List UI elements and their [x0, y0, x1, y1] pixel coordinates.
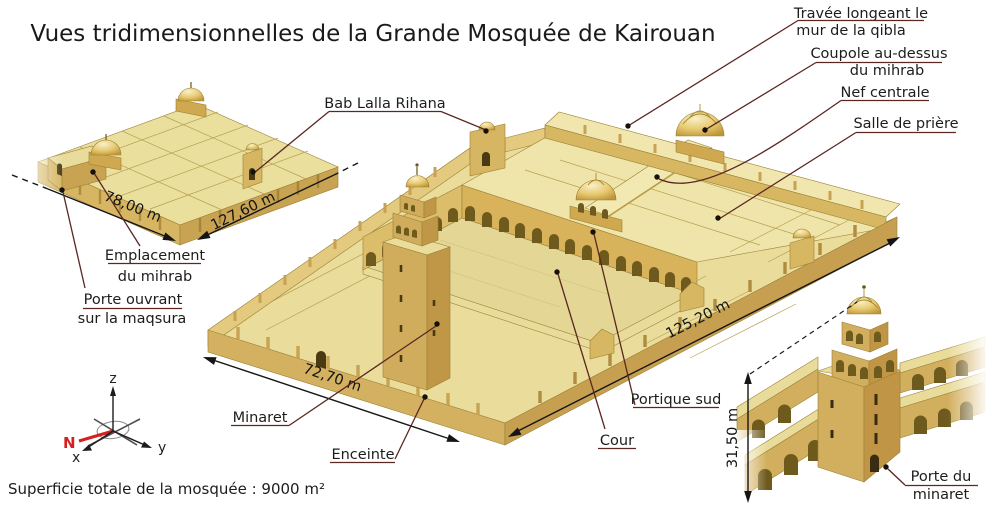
det-fade-right [948, 330, 989, 480]
label-porte-minaret-line2: minaret [913, 487, 970, 503]
leader-maqsura [63, 192, 85, 288]
axis-y-head [141, 442, 152, 449]
dot-enceinte [422, 394, 427, 399]
axis-y-label: y [158, 440, 166, 456]
label-cour: Cour [600, 433, 634, 449]
label-emplacement-line2: du mihrab [118, 269, 192, 285]
axis-y-line [113, 431, 147, 446]
axis-z-label: z [109, 371, 116, 387]
label-portique: Portique sud [631, 392, 722, 408]
leader-porte-minaret [888, 469, 905, 485]
dot-emplacement [90, 169, 95, 174]
det-tower-finial-ball [862, 285, 866, 289]
dot-bab-small [250, 169, 255, 174]
label-nef: Nef centrale [840, 85, 929, 101]
dot-nef [654, 174, 659, 179]
small-view-mosque [12, 82, 338, 250]
label-minaret: Minaret [233, 410, 288, 426]
main-minaret-finial-ball [415, 163, 418, 166]
dot-maqsura [59, 187, 64, 192]
label-salle: Salle de prière [853, 116, 958, 132]
label-bab: Bab Lalla Rihana [324, 96, 445, 112]
compass-axes-heads [82, 386, 152, 451]
small-view-fade [12, 118, 64, 250]
page-title: Vues tridimensionnelles de la Grande Mos… [30, 21, 715, 47]
leader-coupole [705, 63, 816, 131]
infographic-kairouan-mosque: Vues tridimensionnelles de la Grande Mos… [0, 0, 989, 512]
diagram-canvas: Vues tridimensionnelles de la Grande Mos… [0, 0, 989, 512]
dot-bab-main [483, 128, 488, 133]
dot-portique [590, 229, 595, 234]
label-emplacement-line1: Emplacement [105, 248, 206, 264]
det-tower-door [870, 455, 879, 473]
dot-cour [554, 269, 559, 274]
label-maqsura-line1: Porte ouvrant [84, 292, 183, 308]
axis-x-label: x [72, 450, 80, 466]
label-porte-minaret-line1: Porte du [911, 469, 972, 485]
label-coupole-line2: du mihrab [850, 63, 924, 79]
label-enceinte: Enceinte [331, 447, 394, 463]
footer-total-area: Superficie totale de la mosquée : 9000 m… [8, 480, 325, 498]
dim-72-head-left [203, 357, 217, 365]
label-travee-line2: mur de la qibla [796, 23, 906, 39]
north-label: N [63, 434, 76, 452]
det-tower-front [818, 372, 864, 482]
label-maqsura-line2: sur la maqsura [78, 311, 187, 327]
dot-salle [715, 215, 720, 220]
small-north-dome [178, 88, 204, 101]
axis-z-head [110, 386, 116, 396]
label-coupole-line1: Coupole au-dessus [810, 46, 947, 62]
dot-minaret [434, 321, 439, 326]
dim-72-head-right [446, 434, 460, 442]
main-minaret-front [383, 242, 427, 390]
dot-coupole [702, 127, 707, 132]
det-tower-side [864, 371, 900, 482]
dot-travee [625, 123, 630, 128]
main-minaret-dome [406, 176, 429, 188]
main-bab-gate-door [482, 152, 490, 166]
compass-rose: z y x N [63, 371, 166, 466]
label-travee-line1: Travée longeant le [793, 6, 928, 22]
leader-bab-right [441, 112, 486, 131]
main-minaret-side [427, 247, 450, 390]
dim-31-label: 31,50 m [725, 408, 741, 468]
dot-porte-minaret [883, 464, 888, 469]
